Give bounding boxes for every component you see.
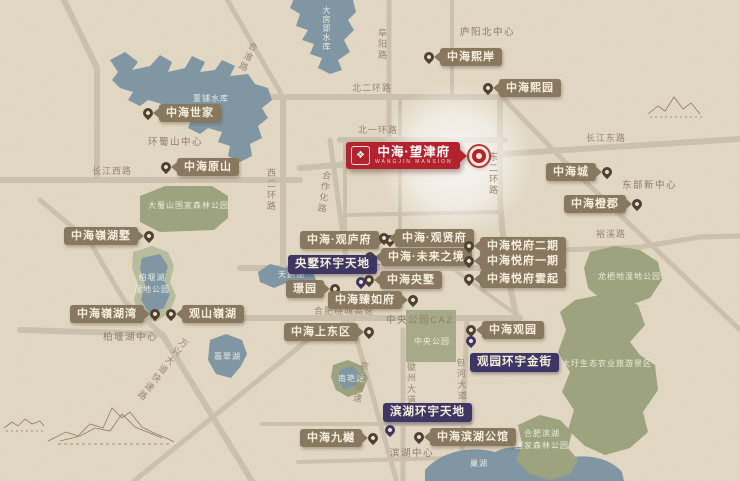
property-chip-label: 中海嶺湖湾 bbox=[77, 307, 137, 321]
park-label: 中央公园 bbox=[414, 336, 450, 348]
project-banner: ❖ 中海·望津府 WANGJIN MANSION bbox=[346, 142, 489, 169]
project-subtitle: WANGJIN MANSION bbox=[375, 160, 453, 165]
chip-arrow-icon bbox=[434, 52, 440, 62]
property-chip: 中海嶺湖湾 bbox=[70, 305, 144, 323]
property-chip: 中海九樾 bbox=[300, 429, 362, 447]
district-label: 滨湖中心 bbox=[390, 449, 434, 459]
property-chip-label: 中海世家 bbox=[166, 106, 214, 120]
property-chip-label: 中海熙岸 bbox=[447, 50, 495, 64]
map-pin-icon bbox=[600, 165, 614, 179]
property-marker: 中海熙园 bbox=[483, 79, 561, 97]
commercial-chip: 央墅环宇天地 bbox=[288, 255, 377, 274]
road-label: 西二环路 bbox=[266, 168, 275, 212]
project-title-block: 中海·望津府 WANGJIN MANSION bbox=[375, 146, 453, 166]
park-label: 大圩生态农业旅游景区 bbox=[562, 358, 652, 370]
road-label: 裕溪路 bbox=[596, 230, 626, 239]
property-chip-label: 中海熙园 bbox=[506, 81, 554, 95]
property-chip: 中海嶺湖墅 bbox=[64, 227, 138, 245]
chip-arrow-icon bbox=[171, 162, 177, 172]
property-chip: 中海·未来之境 bbox=[381, 248, 472, 266]
property-chip-label: 中海悦府雲起 bbox=[487, 272, 559, 286]
road-label: 长江西路 bbox=[92, 167, 132, 176]
property-chip-label: 中海央墅 bbox=[387, 273, 435, 287]
property-chip: 中海世家 bbox=[159, 104, 221, 122]
property-chip: 中海上东区 bbox=[284, 323, 358, 341]
property-chip-label: 观山嶺湖 bbox=[189, 307, 237, 321]
district-label: 庐阳北中心 bbox=[460, 28, 515, 38]
banner-arrow-icon bbox=[459, 149, 467, 163]
property-marker: 观山嶺湖 bbox=[166, 305, 244, 323]
commercial-chip: 滨湖环宇天地 bbox=[383, 403, 472, 422]
property-chip: 中海·观贤府 bbox=[395, 229, 474, 247]
property-marker: 中海嶺湖墅 bbox=[64, 227, 154, 245]
property-chip: 中海悦府雲起 bbox=[480, 270, 566, 288]
map-pin-icon bbox=[630, 197, 644, 211]
property-chip: 中海臻如府 bbox=[328, 291, 402, 309]
project-location-target-icon bbox=[469, 146, 489, 166]
chip-arrow-icon bbox=[474, 274, 480, 284]
chip-arrow-icon bbox=[476, 325, 482, 335]
road-label: 北一环路 bbox=[358, 126, 398, 135]
district-label: 中央公园CAZ bbox=[386, 316, 454, 326]
map-pin-icon bbox=[148, 307, 162, 321]
chip-arrow-icon bbox=[153, 108, 159, 118]
property-marker: 中海臻如府 bbox=[328, 291, 418, 309]
property-chip-label: 中海观园 bbox=[489, 323, 537, 337]
water-label: 翡翠湖 bbox=[214, 351, 241, 363]
property-chip: 璟园 bbox=[286, 280, 324, 298]
district-label: 环蜀山中心 bbox=[148, 138, 203, 148]
map-pin-icon bbox=[362, 325, 376, 339]
property-chip-label: 中海·观庐府 bbox=[307, 233, 372, 247]
property-chip: 中海橙郡 bbox=[564, 195, 626, 213]
water-label: 柏堰湖 湿地公园 bbox=[134, 272, 170, 296]
chip-arrow-icon bbox=[474, 241, 480, 251]
property-chip-label: 璟园 bbox=[293, 282, 317, 296]
property-chip: 中海城 bbox=[546, 163, 596, 181]
commercial-marker: 观园环宇金街 bbox=[470, 353, 559, 372]
commercial-chip-label: 滨湖环宇天地 bbox=[390, 405, 465, 420]
chip-arrow-icon bbox=[176, 309, 182, 319]
property-chip-label: 中海上东区 bbox=[291, 325, 351, 339]
property-chip: 中海·观庐府 bbox=[300, 231, 379, 249]
property-chip-label: 中海滨湖公馆 bbox=[437, 430, 509, 444]
property-marker: 中海悦府一期 bbox=[464, 252, 566, 270]
road-label: 东二环路 bbox=[488, 152, 497, 196]
property-marker: 中海·观贤府 bbox=[379, 229, 474, 247]
property-chip: 中海原山 bbox=[177, 158, 239, 176]
property-marker: 中海·未来之境 bbox=[365, 248, 472, 266]
property-chip: 中海观园 bbox=[482, 321, 544, 339]
road-label: 包河大道 bbox=[455, 358, 466, 402]
park-label: 大蜀山国家森林公园 bbox=[148, 200, 229, 212]
location-map: ❖ 中海·望津府 WANGJIN MANSION 中海世家中海原山中海嶺湖墅中海… bbox=[0, 0, 740, 481]
property-marker: 中海上东区 bbox=[284, 323, 374, 341]
commercial-marker: 滨湖环宇天地 bbox=[383, 403, 472, 422]
property-marker: 中海城 bbox=[546, 163, 612, 181]
road-label: 长江东路 bbox=[586, 134, 626, 143]
map-pin-icon bbox=[142, 229, 156, 243]
property-chip: 中海熙岸 bbox=[440, 48, 502, 66]
chip-arrow-icon bbox=[389, 233, 395, 243]
commercial-marker: 央墅环宇天地 bbox=[288, 255, 377, 274]
road-label: 北二环路 bbox=[352, 84, 392, 93]
property-marker: 中海熙岸 bbox=[424, 48, 502, 66]
property-marker: 中海嶺湖湾 bbox=[70, 305, 160, 323]
china-overseas-rosette-icon: ❖ bbox=[351, 146, 370, 165]
property-chip: 观山嶺湖 bbox=[182, 305, 244, 323]
project-name: 中海·望津府 bbox=[377, 146, 450, 159]
property-chip-label: 中海原山 bbox=[184, 160, 232, 174]
district-label: 东部新中心 bbox=[622, 181, 677, 191]
commercial-chip-label: 央墅环宇天地 bbox=[295, 257, 370, 272]
property-marker: 中海九樾 bbox=[300, 429, 378, 447]
project-banner-body: ❖ 中海·望津府 WANGJIN MANSION bbox=[346, 142, 460, 169]
property-marker: 中海原山 bbox=[161, 158, 239, 176]
property-chip-label: 中海九樾 bbox=[307, 431, 355, 445]
property-chip-label: 中海城 bbox=[553, 165, 589, 179]
road-label: 阜阳路 bbox=[377, 28, 386, 61]
property-marker: 中海滨湖公馆 bbox=[414, 428, 516, 446]
property-chip-label: 中海·未来之境 bbox=[388, 250, 465, 264]
chip-arrow-icon bbox=[374, 275, 380, 285]
road-label: 徽州大道 bbox=[406, 362, 415, 406]
park-label: 合肥滨湖 国家森林公园 bbox=[515, 428, 569, 452]
property-chip-label: 中海悦府一期 bbox=[487, 254, 559, 268]
property-chip-label: 中海·观贤府 bbox=[402, 231, 467, 245]
commercial-chip: 观园环宇金街 bbox=[470, 353, 559, 372]
property-chip: 中海熙园 bbox=[499, 79, 561, 97]
chip-arrow-icon bbox=[474, 256, 480, 266]
park-label: 龙栖地湿地公园 bbox=[598, 271, 661, 283]
chip-arrow-icon bbox=[424, 432, 430, 442]
property-marker: 中海观园 bbox=[466, 321, 544, 339]
commercial-chip-label: 观园环宇金街 bbox=[477, 355, 552, 370]
water-label: 巢湖 bbox=[470, 458, 488, 470]
property-marker: 中海世家 bbox=[143, 104, 221, 122]
map-pin-icon bbox=[366, 431, 380, 445]
property-chip: 中海悦府一期 bbox=[480, 252, 566, 270]
property-chip-label: 中海嶺湖墅 bbox=[71, 229, 131, 243]
property-marker: 中海橙郡 bbox=[564, 195, 642, 213]
water-label: 大房郢水库 bbox=[320, 6, 332, 51]
map-pin-icon bbox=[406, 293, 420, 307]
chip-arrow-icon bbox=[493, 83, 499, 93]
property-chip: 中海央墅 bbox=[380, 271, 442, 289]
property-chip-label: 中海橙郡 bbox=[571, 197, 619, 211]
property-chip: 中海滨湖公馆 bbox=[430, 428, 516, 446]
property-chip-label: 中海臻如府 bbox=[335, 293, 395, 307]
property-marker: 中海悦府雲起 bbox=[464, 270, 566, 288]
district-label: 柏堰湖中心 bbox=[103, 333, 158, 343]
